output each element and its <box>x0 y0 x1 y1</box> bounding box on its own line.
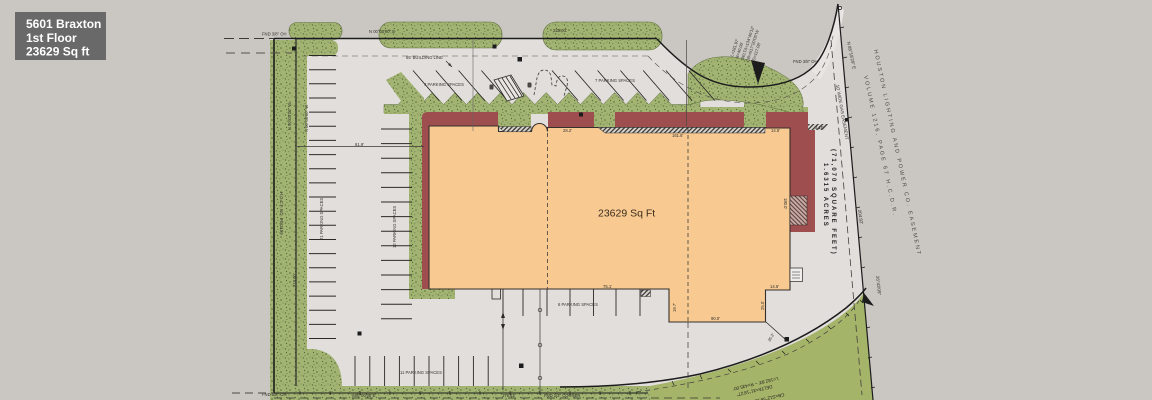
svg-text:1st Floor: 1st Floor <box>26 31 77 45</box>
svg-text:3.1E: 3.1E <box>815 125 824 130</box>
svg-text:6 PARKING SPACES: 6 PARKING SPACES <box>558 302 598 307</box>
svg-text:S00°00'00"E: S00°00'00"E <box>352 393 376 398</box>
svg-text:7 PARKING SPACES: 7 PARKING SPACES <box>595 78 635 83</box>
svg-text:N 90°00'00" W: N 90°00'00" W <box>287 103 292 130</box>
svg-text:61.9': 61.9' <box>355 142 364 147</box>
svg-text:N 00°00'00" E: N 00°00'00" E <box>369 29 395 34</box>
svg-text:179.62': 179.62' <box>502 393 516 398</box>
svg-text:(71,070 SQUARE FEET): (71,070 SQUARE FEET) <box>830 149 836 256</box>
svg-text:N 00°00'00" W: N 00°00'00" W <box>304 105 309 132</box>
svg-text:65' BUILDING LINE: 65' BUILDING LINE <box>406 55 443 60</box>
svg-text:21 PARKING SPACES: 21 PARKING SPACES <box>319 198 324 240</box>
svg-text:H.G.C.F. NO. P662199: H.G.C.F. NO. P662199 <box>279 192 284 235</box>
svg-text:90.0': 90.0' <box>711 316 720 321</box>
svg-text:4 PARKING SPACES: 4 PARKING SPACES <box>424 82 464 87</box>
svg-text:FND 1/2" CORNER: FND 1/2" CORNER <box>544 393 580 398</box>
svg-text:28.2': 28.2' <box>563 128 572 133</box>
svg-text:FND 5/8" OH: FND 5/8" OH <box>262 392 287 397</box>
svg-text:12 PARKING SPACES: 12 PARKING SPACES <box>392 206 397 248</box>
svg-text:14.6': 14.6' <box>770 284 779 289</box>
svg-text:225.00': 225.00' <box>553 28 567 33</box>
svg-text:180.0': 180.0' <box>783 198 788 209</box>
svg-text:25.0': 25.0' <box>760 301 765 310</box>
svg-text:5601 Braxton: 5601 Braxton <box>26 17 101 31</box>
svg-text:1.6315 ACRES: 1.6315 ACRES <box>822 163 828 228</box>
svg-text:FND 3/8" OH: FND 3/8" OH <box>262 32 287 37</box>
svg-text:218.00': 218.00' <box>292 273 297 287</box>
svg-text:11 PARKING SPACES: 11 PARKING SPACES <box>400 370 442 375</box>
svg-text:14.5': 14.5' <box>771 128 780 133</box>
svg-text:23629 Sq ft: 23629 Sq ft <box>26 45 89 59</box>
svg-text:19.7': 19.7' <box>672 303 677 312</box>
svg-text:75.1': 75.1' <box>603 284 612 289</box>
svg-text:FND 3/8" OH: FND 3/8" OH <box>793 59 818 64</box>
svg-text:161.6': 161.6' <box>672 133 683 138</box>
svg-text:23629 Sq Ft: 23629 Sq Ft <box>598 208 655 220</box>
